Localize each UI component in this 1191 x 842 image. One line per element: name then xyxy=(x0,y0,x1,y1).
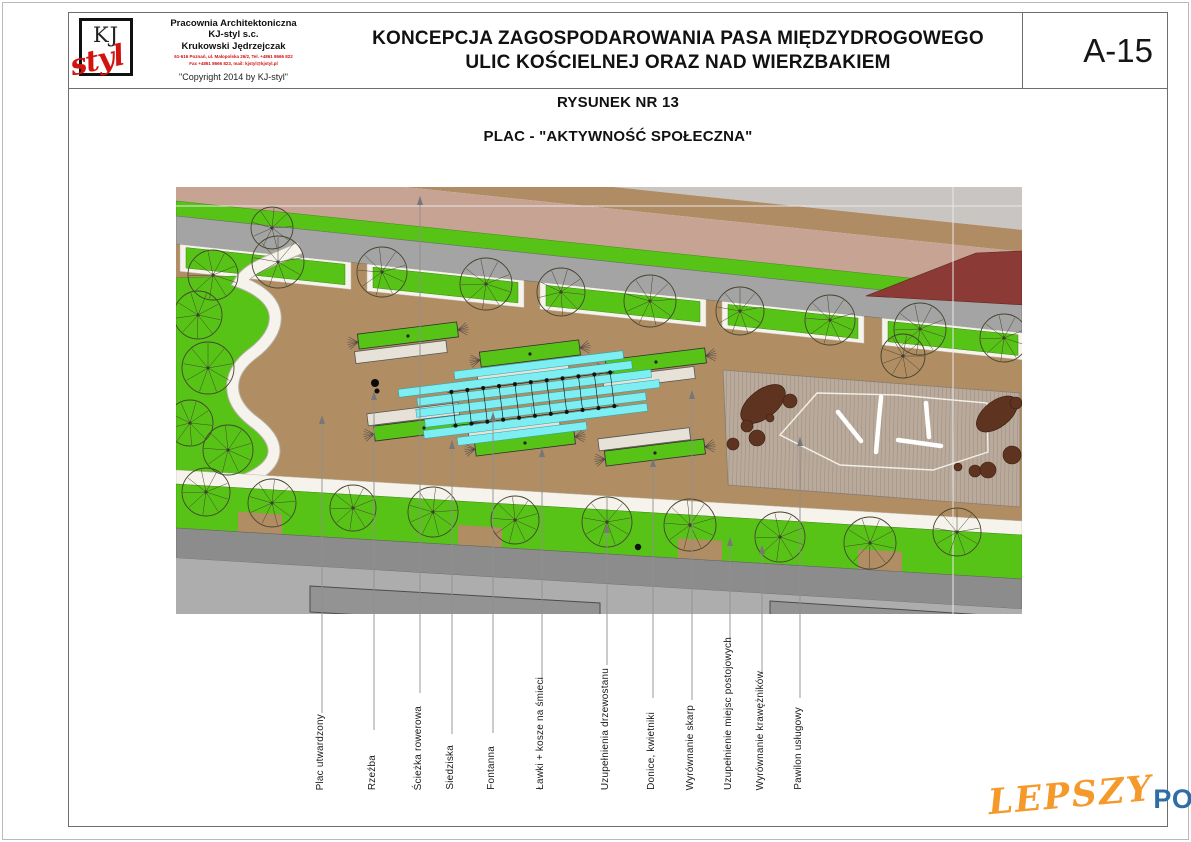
site-plan-drawing xyxy=(0,0,1191,842)
watermark-poznan: POZNAN xyxy=(1153,785,1191,813)
watermark-lepszy: LEPSZY xyxy=(987,771,1155,820)
drawing-sheet: KJ styl Pracownia Architektoniczna KJ-st… xyxy=(0,0,1191,842)
plan-graphics xyxy=(167,187,1028,642)
watermark: LEPSZY POZNAN .pl xyxy=(988,778,1191,813)
